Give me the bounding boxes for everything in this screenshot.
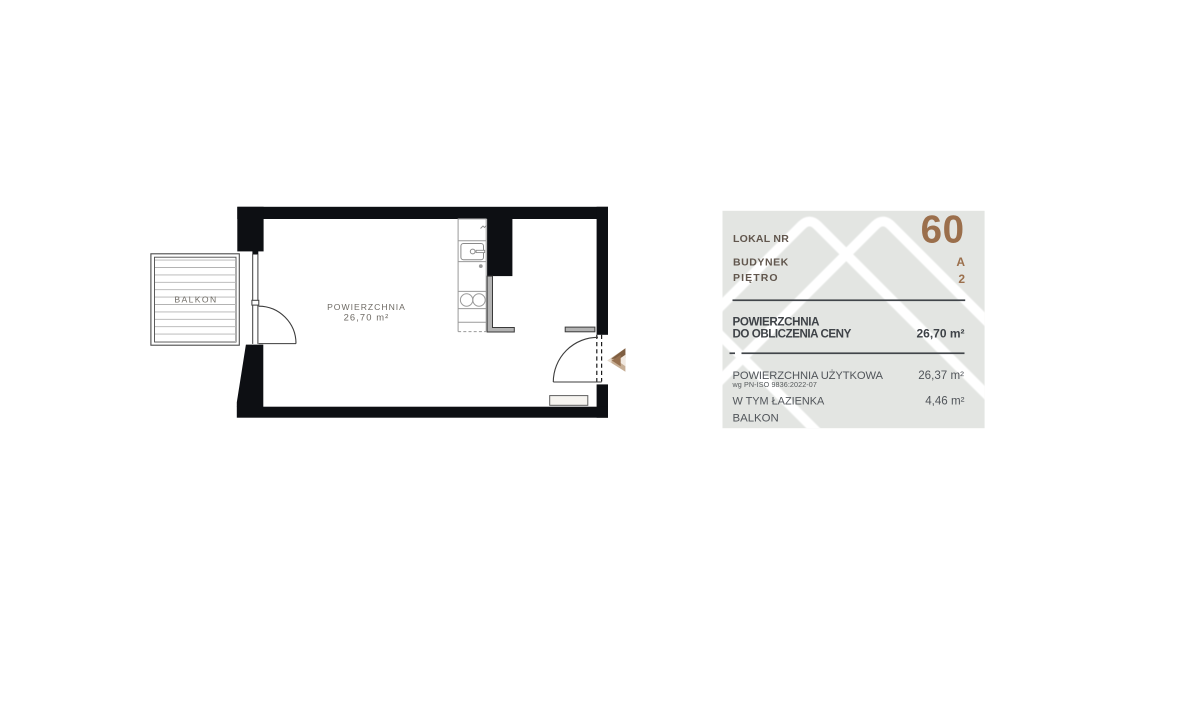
svg-text:A: A [956,255,965,269]
svg-text:26,70 m²: 26,70 m² [344,312,390,323]
svg-text:BALKON: BALKON [733,413,779,425]
svg-text:26,37 m²: 26,37 m² [918,369,964,382]
svg-text:BUDYNEK: BUDYNEK [733,257,789,269]
svg-text:W TYM ŁAZIENKA: W TYM ŁAZIENKA [733,395,826,407]
svg-text:DO OBLICZENIA CENY: DO OBLICZENIA CENY [733,327,852,340]
svg-text:26,70 m²: 26,70 m² [916,326,964,340]
svg-text:PIĘTRO: PIĘTRO [733,272,779,284]
svg-text:wg PN-ISO 9836:2022-07: wg PN-ISO 9836:2022-07 [732,380,818,389]
svg-text:BALKON: BALKON [174,295,217,305]
svg-text:2: 2 [958,272,965,286]
svg-text:60: 60 [921,208,965,251]
svg-text:LOKAL NR: LOKAL NR [733,233,789,245]
svg-text:4,46 m²: 4,46 m² [925,394,964,407]
